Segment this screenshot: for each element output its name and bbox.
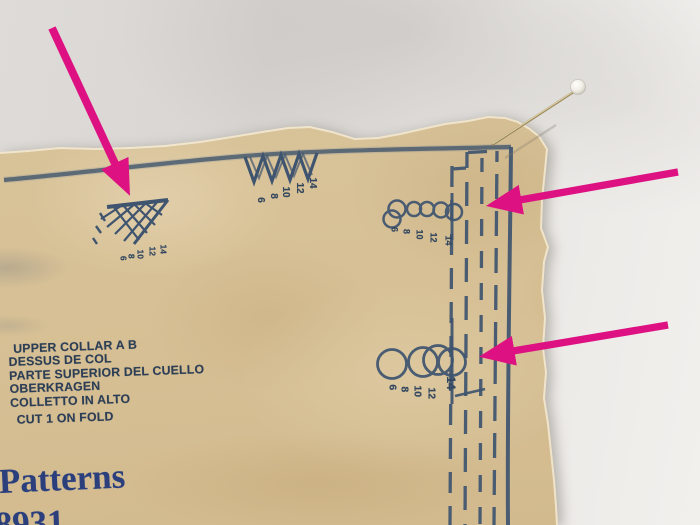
photo-sewing-pattern: 14 12 10 8 6 14 12 10 8 6 6 8 10 12 14 [0, 0, 700, 525]
annotation-arrow-foldline-top [514, 172, 678, 201]
photo-annotations [0, 0, 700, 525]
pin-shaft-highlight [493, 91, 576, 145]
annotation-arrows [52, 28, 678, 352]
annotation-arrow-foldline-bottom [507, 325, 668, 352]
annotation-arrow-dart [52, 28, 118, 170]
pin-shadow [505, 125, 556, 158]
pin-head [571, 80, 586, 95]
sewing-pin [492, 80, 586, 159]
